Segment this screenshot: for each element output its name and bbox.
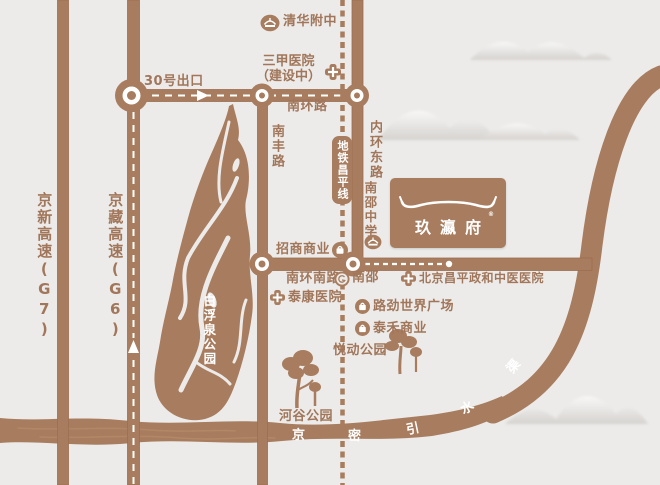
zhaoshang-commerce-label: 招商商业	[276, 243, 330, 258]
nanshao-station-label: 南邵	[352, 271, 379, 286]
canal-char-mi: 密	[348, 425, 361, 444]
road-nanfeng	[258, 95, 268, 485]
nanfeng-road-label: 南丰路	[268, 124, 283, 169]
shopping-bag-icon	[355, 321, 370, 340]
shopping-bag-icon	[355, 299, 370, 318]
school-icon	[364, 234, 382, 254]
hospital-cross-icon	[401, 271, 416, 290]
junction-nanfeng-south-ring	[250, 84, 274, 108]
project-jiuyingfu-box: 玖瀛府 ®	[390, 178, 506, 248]
shopping-bag-icon	[332, 242, 348, 262]
roof-line-icon	[390, 178, 506, 212]
trademark-mark: ®	[488, 211, 494, 218]
yuedong-park-label: 悦动公园	[333, 344, 387, 359]
location-map: 京新高速(G7) 京藏高速(G6) 30号出口 清华附中 三甲医院 （建设中） …	[0, 0, 660, 485]
mountains-top-right	[378, 42, 612, 140]
sanjia-hospital-label: 三甲医院 （建设中）	[256, 54, 321, 84]
zhenghe-hospital-label: 北京昌平政和中医医院	[419, 272, 544, 286]
taikang-hospital-label: 泰康医院	[288, 291, 342, 306]
highway-g6-label: 京藏高速(G6)	[106, 192, 123, 340]
junction-inner-east-south-ring	[345, 84, 369, 108]
road-g7	[58, 0, 69, 485]
exit-30-label: 30号出口	[144, 75, 204, 90]
school-icon	[260, 14, 280, 36]
south-ring-south-road-label: 南环南路	[286, 272, 340, 287]
hegu-park-trees	[282, 350, 321, 408]
highway-g7-label: 京新高速(G7)	[35, 192, 52, 340]
taihe-commerce-label: 泰禾商业	[373, 322, 427, 337]
nanshao-school-label: 南邵中学	[362, 181, 376, 239]
metro-station-icon	[334, 271, 350, 291]
junction-nanfeng-south-ring-south	[250, 252, 275, 277]
canal-char-jing: 京	[292, 424, 306, 443]
hospital-cross-icon	[270, 290, 285, 309]
south-ring-road-label: 南环路	[287, 100, 328, 115]
baifuquan-park-label: 白浮泉公园	[201, 294, 215, 367]
baifuquan-park-shape	[154, 104, 252, 420]
qinghua-school-label: 清华附中	[283, 15, 337, 30]
hospital-cross-icon	[325, 64, 341, 84]
road-south-ring-south	[262, 258, 592, 271]
inner-east-road-label: 内环东路	[366, 120, 381, 180]
metro-changping-line-badge: 地铁昌平线	[332, 136, 352, 204]
lujin-plaza-label: 路劲世界广场	[373, 300, 454, 315]
hegu-park-label: 河谷公园	[279, 410, 333, 425]
